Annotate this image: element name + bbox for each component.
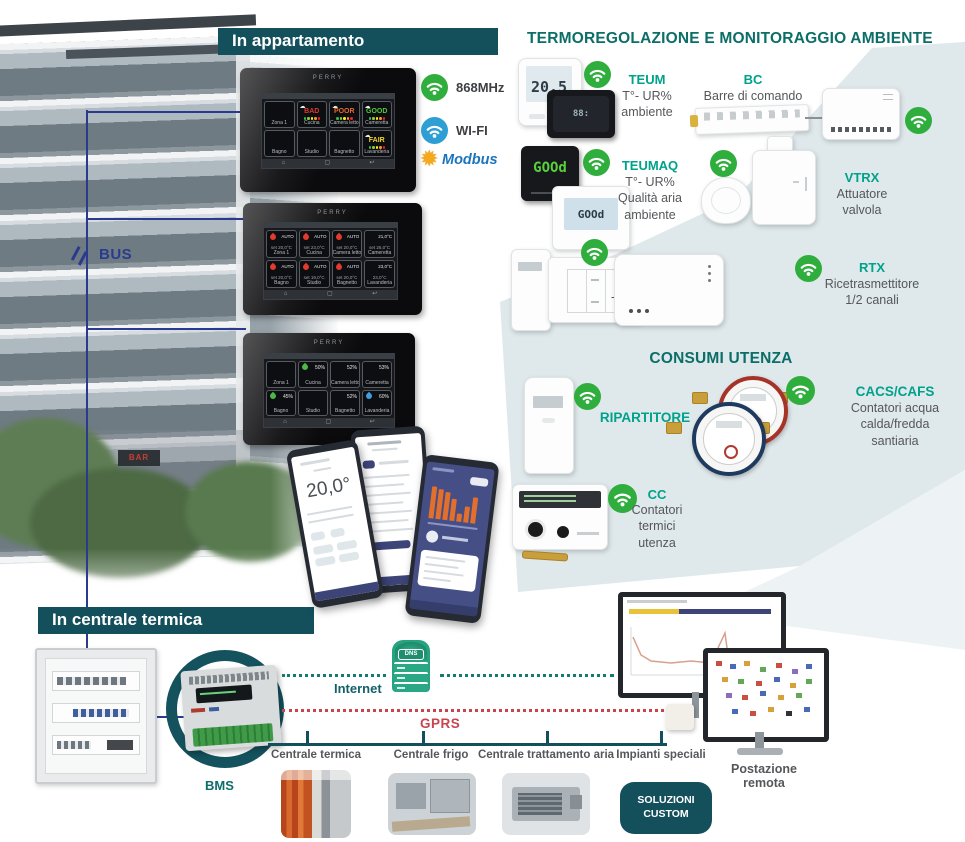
bc-box-ports	[831, 127, 891, 132]
menu-icon: ▢	[325, 418, 331, 427]
panel-brand: PERRY	[243, 210, 422, 216]
room: Cameretta	[365, 250, 394, 256]
setl: set 19,0°C	[300, 275, 329, 280]
product-desc-bc: Barre di comando	[673, 88, 833, 104]
branch-label-trattamento-aria: Centrale trattamento aria	[478, 749, 614, 761]
product-name-rtx: RTX	[812, 260, 932, 275]
internet-dotted-line-2	[440, 674, 614, 677]
product-desc-rtx: Ricetrasmettitore 1/2 canali	[802, 276, 942, 309]
home-icon: ⌂	[282, 159, 286, 168]
branch-tick	[660, 731, 663, 744]
room: Bagnetto	[330, 149, 359, 155]
soluzioni-custom-button: SOLUZIONI CUSTOM	[620, 782, 712, 834]
screen-tile: BagnettoAUTOset 20,0°C	[332, 260, 363, 288]
meter-fitting	[692, 392, 708, 404]
st: GOOD	[363, 108, 392, 115]
screen-tile: Camera letto52%	[330, 361, 360, 388]
photo-centrale-frigo	[388, 773, 476, 835]
cc-display-lines	[524, 495, 576, 497]
flame	[334, 263, 342, 271]
ripartitore-lcd	[533, 396, 563, 408]
room: Studio	[298, 149, 327, 155]
branch-tick	[306, 731, 309, 744]
menu-icon: ▢	[327, 290, 333, 299]
screen-tile: StudioAUTOset 19,0°C	[299, 260, 330, 288]
rtx-leds	[708, 265, 711, 268]
flame	[334, 233, 342, 241]
dots	[363, 146, 392, 149]
screen-tile: BagnoAUTOset 20,0°C	[266, 260, 297, 288]
vtrx-mark	[793, 181, 799, 183]
bc-terminals	[704, 109, 800, 120]
monitor-base	[737, 748, 783, 755]
cabinet-row	[52, 703, 140, 723]
ripartitore-device	[524, 377, 574, 474]
app-footer-bar	[315, 581, 380, 601]
screen-tile: Cameretta21,0°Cset 26,0°C	[364, 230, 395, 258]
pct: 45%	[283, 394, 293, 400]
product-name-teum: TEUM	[597, 72, 697, 87]
bms-led	[191, 708, 205, 713]
room: Lavanderia	[365, 280, 394, 286]
st: BAD	[298, 108, 327, 115]
rf-868-icon	[421, 74, 448, 101]
consumption-bar-chart	[428, 484, 478, 523]
screen-tile: Lavanderia23,0°C23,0°C	[364, 260, 395, 288]
branch-tick	[546, 731, 549, 744]
scada-schematic-pixels	[716, 661, 722, 666]
bus-line-panel3	[86, 328, 246, 330]
schedule-confirm-button	[372, 540, 410, 551]
room: Camera letto	[333, 250, 362, 256]
ripartitore-button	[542, 418, 555, 423]
branch-label-centrale-termica: Centrale termica	[271, 749, 361, 761]
photo-trattamento-aria	[502, 773, 590, 835]
teumaq-lcd: GOOd	[527, 160, 573, 176]
room: Cameretta	[363, 380, 391, 386]
back-icon: ↩	[370, 418, 375, 427]
stx-sensor-device	[511, 249, 551, 331]
electrical-cabinet	[35, 648, 157, 784]
teumaq-vent	[531, 192, 553, 194]
cc-dial-2	[557, 526, 569, 538]
room: Zona 1	[265, 120, 294, 126]
dots	[363, 117, 392, 120]
touch-panel-temperature: PERRY Zona 1AUTOset 20,0°CCucinaAUTOset …	[243, 203, 422, 315]
flame	[269, 263, 277, 271]
plant-branch-line	[268, 743, 667, 746]
meter-dial	[724, 445, 738, 459]
room: Zona 1	[267, 250, 296, 256]
dns-label: DNS	[398, 649, 424, 660]
gprs-label: GPRS	[420, 716, 460, 731]
chart-filter-button	[470, 477, 489, 487]
flame	[269, 233, 277, 241]
wifi-badge	[581, 239, 608, 266]
setl: set 26,0°C	[365, 245, 394, 250]
screen-tile: Zona 1	[264, 101, 295, 128]
bus-line-panel2	[86, 218, 246, 220]
screen-navbar: ⌂▢↩	[262, 159, 394, 168]
cold-water-meter	[692, 402, 766, 476]
app-temperature-value: 20,0°	[295, 472, 362, 505]
screen-tile: CucinaAUTOset 23,0°C	[299, 230, 330, 258]
screen-navbar: ⌂▢↩	[264, 418, 394, 427]
user-avatar	[425, 530, 438, 543]
cc-label-mark	[577, 532, 599, 535]
bms-top-terminals	[189, 671, 269, 685]
room: Cameretta	[363, 120, 392, 126]
room: Lavanderia	[363, 408, 391, 414]
room: Bagno	[267, 280, 296, 286]
product-desc-cc: Contatori termici utenza	[607, 502, 707, 551]
schedule-row-icon	[363, 460, 376, 469]
chart-header-yellow	[629, 609, 679, 614]
bms-terminal-block	[192, 723, 273, 747]
pct: 52%	[347, 365, 357, 371]
room: Studio	[300, 280, 329, 286]
branch-label-centrale-frigo: Centrale frigo	[394, 749, 469, 761]
mode: AUTO	[281, 234, 293, 239]
vtrx-actuator-round	[701, 177, 751, 224]
room: Bagno	[265, 149, 294, 155]
stx-sensor-window	[518, 262, 542, 271]
screen-tile: Studio	[297, 130, 328, 157]
screen-tile: Zona 1AUTOset 20,0°C	[266, 230, 297, 258]
meter-register	[740, 394, 766, 401]
touch-panel-air-quality: PERRY Zona 1Cucina☁BADCamera letto☁POORC…	[240, 68, 416, 192]
teum-button	[529, 114, 545, 119]
setl: set 20,0°C	[333, 245, 362, 250]
screen-tile: Studio	[298, 390, 328, 417]
pct: 52%	[347, 394, 357, 400]
bms-label: BMS	[205, 778, 234, 793]
room: Cucina	[298, 120, 327, 126]
phone-screen	[409, 461, 495, 616]
bms-led	[209, 707, 219, 712]
cc-device	[512, 484, 608, 550]
wifi-label: WI-FI	[456, 123, 488, 138]
rtx-device	[614, 254, 724, 326]
screen-tile: Bagno45%	[266, 390, 296, 417]
st: POOR	[330, 108, 359, 115]
screen-grid-humidity: Zona 1Cucina50%Camera letto52%Cameretta5…	[264, 359, 394, 418]
drop	[301, 363, 309, 371]
product-desc-cacs-cafs: Contatori acqua calda/fredda santiaria	[820, 400, 965, 449]
panel-screen: Zona 1Cucina☁BADCamera letto☁POORCameret…	[261, 93, 395, 169]
setl: set 23,0°C	[300, 245, 329, 250]
modbus-icon: ✹	[420, 148, 438, 170]
chart-header-navy	[679, 609, 771, 614]
gprs-dotted-line	[282, 709, 664, 712]
screen-tile: Cucina☁BAD	[297, 101, 328, 128]
screen-tile: Bagnetto52%	[330, 390, 360, 417]
meter-fitting	[666, 422, 682, 434]
internet-label: Internet	[334, 681, 382, 696]
screen-tile: Lavanderia☁FAIR	[362, 130, 393, 157]
st: FAIR	[363, 137, 392, 144]
screen-tile: Bagnetto	[329, 130, 360, 157]
setl: set 20,0°C	[267, 275, 296, 280]
screen-tile: Camera letto☁POOR	[329, 101, 360, 128]
wifi-icon	[421, 117, 448, 144]
infographic-canvas: BAR BUS In appartamento PERRY Zona 1Cuci…	[0, 0, 965, 842]
info-card	[417, 549, 479, 592]
screen-navbar: ⌂▢↩	[264, 290, 397, 299]
room: Camera letto	[331, 380, 359, 386]
bus-label: BUS	[99, 246, 132, 263]
mode: AUTO	[281, 264, 293, 269]
thermo-section-title: TERMOREGOLAZIONE E MONITORAGGIO AMBIENTE	[527, 30, 933, 48]
cabinet-door	[45, 658, 147, 774]
screen-tile: Cucina50%	[298, 361, 328, 388]
screen-tile: Lavanderia60%	[362, 390, 392, 417]
bus-line-vertical	[86, 110, 88, 607]
room: Cucina	[299, 380, 327, 386]
mode: AUTO	[347, 234, 359, 239]
home-icon: ⌂	[284, 290, 288, 299]
room: Bagnetto	[331, 408, 359, 414]
rf-868-label: 868MHz	[456, 80, 504, 95]
screen-tile: Bagno	[264, 130, 295, 157]
bc-command-bar-device	[695, 104, 810, 135]
wifi-badge	[574, 383, 601, 410]
back-icon: ↩	[369, 159, 374, 168]
mode: AUTO	[314, 264, 326, 269]
screen-tile: Zona 1	[266, 361, 296, 388]
screen-grid-temperature: Zona 1AUTOset 20,0°CCucinaAUTOset 23,0°C…	[264, 228, 397, 290]
gateway-box	[666, 704, 694, 730]
setl: set 20,0°C	[267, 245, 296, 250]
screen-tile: Cameretta☁GOOD	[362, 101, 393, 128]
remote-monitor-scada	[703, 648, 829, 742]
mode: AUTO	[314, 234, 326, 239]
back-icon: ↩	[372, 290, 377, 299]
product-desc-vtrx: Attuatore valvola	[802, 186, 922, 219]
panel-brand: PERRY	[240, 75, 416, 81]
room: Cucina	[300, 250, 329, 256]
app-button	[310, 531, 325, 541]
photo-centrale-termica	[281, 770, 351, 838]
app-button	[313, 544, 334, 555]
product-name-bc: BC	[693, 72, 813, 87]
remote-station-label: Postazione remota	[731, 762, 797, 790]
cc-display	[519, 491, 601, 508]
room: Bagnetto	[333, 280, 362, 286]
internet-dotted-line	[282, 674, 386, 677]
consumi-section-title: CONSUMI UTENZA	[601, 350, 841, 368]
monitor-stand	[755, 732, 764, 748]
stx-key	[568, 270, 587, 312]
app-button	[330, 528, 345, 538]
mode: AUTO	[347, 264, 359, 269]
panel-screen: Zona 1AUTOset 20,0°CCucinaAUTOset 23,0°C…	[263, 222, 398, 300]
product-desc-teumaq: T°- UR% Qualità aria ambiente	[590, 174, 710, 223]
app-footer-bar	[409, 599, 478, 616]
bc-connector	[690, 115, 698, 127]
room: Camera letto	[330, 120, 359, 126]
product-name-teumaq: TEUMAQ	[590, 158, 710, 173]
bc-box-vents	[883, 94, 893, 100]
setl: set 20,0°C	[333, 275, 362, 280]
screen-tile: Cameretta53%	[362, 361, 392, 388]
modbus-label: Modbus	[442, 152, 498, 168]
dns-server-icon: DNS	[392, 640, 430, 692]
dots	[298, 117, 327, 120]
bus-line-panel1	[86, 111, 242, 113]
screen-grid-air: Zona 1Cucina☁BADCamera letto☁POORCameret…	[262, 99, 394, 159]
panel-brand: PERRY	[243, 340, 415, 346]
flame	[302, 233, 310, 241]
product-name-cacs-cafs: CACS/CAFS	[820, 384, 965, 399]
rtx-buttons	[629, 309, 633, 313]
room: Zona 1	[267, 380, 295, 386]
home-icon: ⌂	[283, 418, 287, 427]
screen-tile: Camera lettoAUTOset 20,0°C	[332, 230, 363, 258]
pct: 60%	[379, 394, 389, 400]
pct: 50%	[315, 365, 325, 371]
mode: 23,0°C	[378, 264, 392, 269]
mode: 21,0°C	[378, 234, 392, 239]
product-name-cc: CC	[607, 487, 707, 502]
app-button	[336, 540, 357, 551]
cabinet-row	[52, 671, 140, 691]
dots	[330, 117, 359, 120]
flame	[302, 263, 310, 271]
wifi-badge	[905, 107, 932, 134]
meter-register	[716, 421, 742, 428]
bc-control-box-device	[822, 88, 900, 140]
bms-controller-device	[180, 665, 281, 752]
apartment-header: In appartamento	[218, 28, 498, 55]
plant-header: In centrale termica	[38, 607, 314, 634]
wifi-badge	[786, 376, 815, 405]
bms-display	[196, 685, 253, 704]
app-button	[315, 556, 336, 567]
bc-cable	[805, 117, 823, 119]
vtrx-cap	[711, 187, 741, 214]
bar-sign: BAR	[118, 450, 160, 466]
cc-dial	[525, 519, 546, 540]
product-name-vtrx: VTRX	[802, 170, 922, 185]
app-button	[338, 551, 359, 562]
panel-screen: Zona 1Cucina50%Camera letto52%Cameretta5…	[263, 353, 395, 428]
cabinet-row	[52, 735, 140, 755]
room: Lavanderia	[363, 149, 392, 155]
branch-tick	[422, 731, 425, 744]
wifi-badge	[710, 150, 737, 177]
drop	[365, 391, 373, 399]
pct: 53%	[379, 365, 389, 371]
room: Studio	[299, 408, 327, 414]
branch-label-impianti-speciali: Impianti speciali	[616, 749, 705, 761]
menu-icon: ▢	[324, 159, 330, 168]
drop	[269, 391, 277, 399]
setl: 23,0°C	[365, 275, 394, 280]
room: Bagno	[267, 408, 295, 414]
